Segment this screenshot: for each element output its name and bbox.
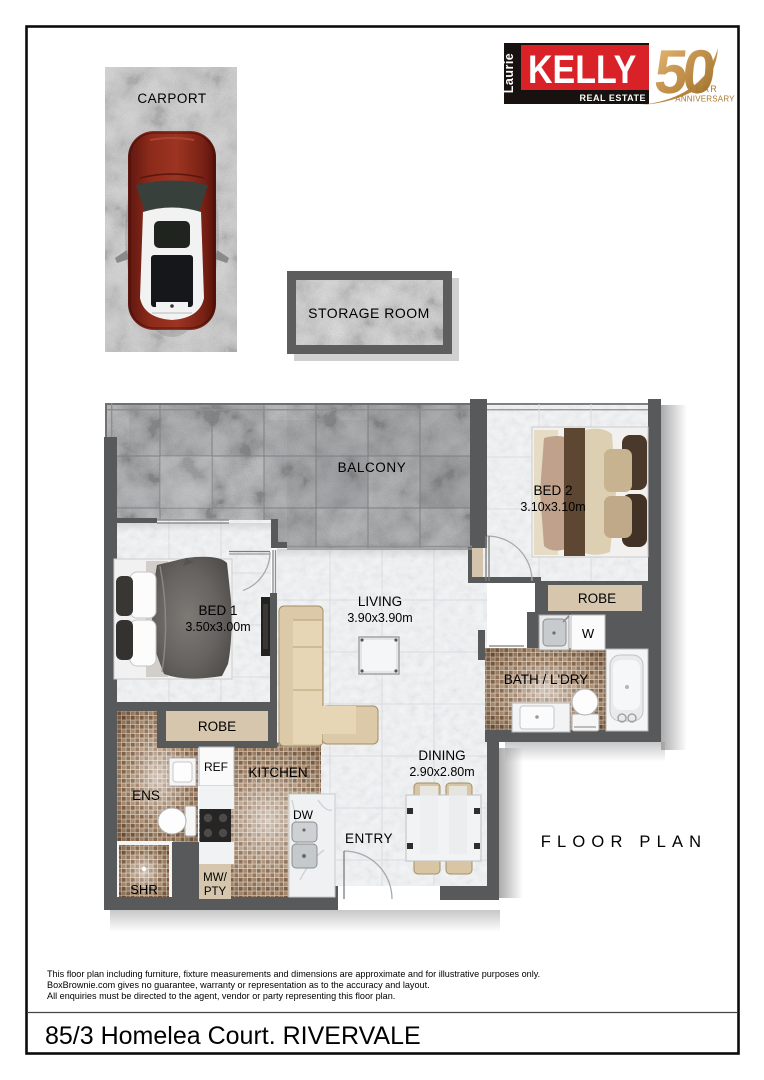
svg-text:REAL ESTATE: REAL ESTATE [579, 93, 646, 103]
svg-text:85/3 Homelea Court. RIVERVALE: 85/3 Homelea Court. RIVERVALE [45, 1022, 421, 1050]
svg-text:3.10x3.10m: 3.10x3.10m [520, 500, 585, 514]
svg-text:ANNIVERSARY: ANNIVERSARY [675, 95, 735, 104]
svg-text:CARPORT: CARPORT [137, 91, 206, 106]
svg-text:LIVING: LIVING [358, 594, 402, 609]
svg-text:3.90x3.90m: 3.90x3.90m [347, 611, 412, 625]
svg-text:DINING: DINING [418, 748, 465, 763]
svg-text:KITCHEN: KITCHEN [248, 765, 307, 780]
svg-text:ENTRY: ENTRY [345, 831, 393, 846]
svg-text:STORAGE ROOM: STORAGE ROOM [308, 305, 430, 321]
svg-text:KELLY: KELLY [528, 46, 637, 91]
svg-text:FLOOR PLAN: FLOOR PLAN [541, 833, 708, 851]
svg-text:ENS: ENS [132, 788, 160, 803]
svg-text:W: W [582, 626, 595, 641]
svg-text:BED 2: BED 2 [533, 483, 572, 498]
svg-text:YEAR: YEAR [688, 84, 719, 94]
svg-text:All enquiries must be directed: All enquiries must be directed to the ag… [47, 991, 395, 1001]
svg-text:REF: REF [204, 760, 228, 774]
svg-text:SHR: SHR [130, 882, 157, 897]
svg-text:BoxBrownie.com gives no guaran: BoxBrownie.com gives no guarantee, warra… [47, 980, 430, 990]
svg-text:MW/: MW/ [203, 872, 227, 884]
svg-text:2.90x2.80m: 2.90x2.80m [409, 765, 474, 779]
svg-text:3.50x3.00m: 3.50x3.00m [185, 620, 250, 634]
svg-text:PTY: PTY [204, 886, 227, 898]
svg-text:BALCONY: BALCONY [338, 460, 407, 475]
svg-text:ROBE: ROBE [198, 719, 236, 734]
svg-text:BED 1: BED 1 [198, 603, 237, 618]
svg-text:Laurie: Laurie [502, 53, 516, 94]
svg-text:BATH / L'DRY: BATH / L'DRY [504, 672, 589, 687]
svg-text:DW: DW [293, 808, 314, 822]
svg-text:This floor plan including furn: This floor plan including furniture, fix… [47, 969, 540, 979]
svg-text:ROBE: ROBE [578, 591, 616, 606]
